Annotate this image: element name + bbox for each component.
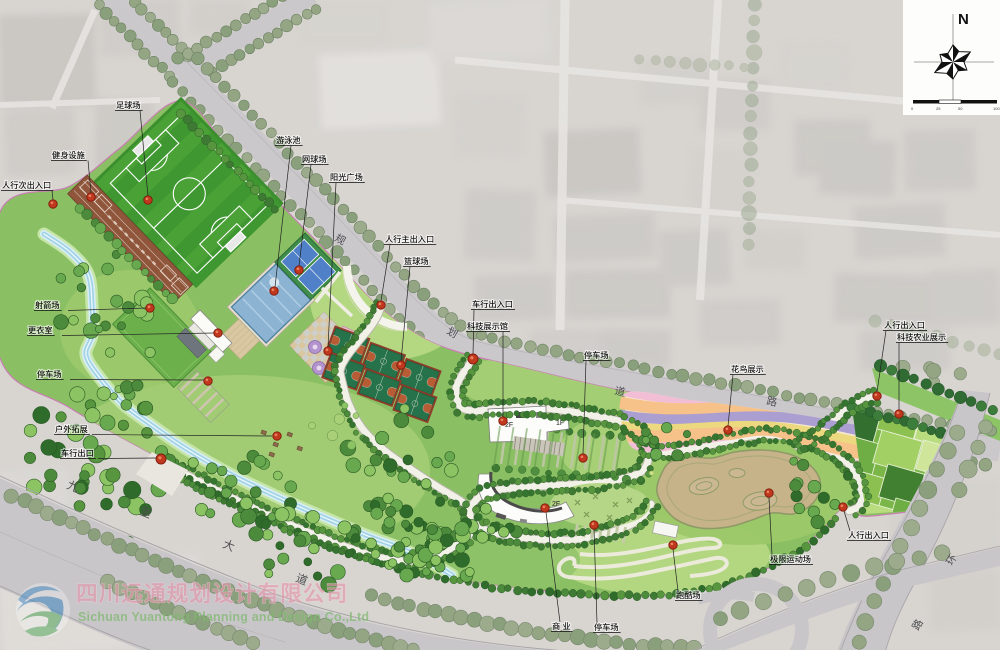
svg-text:商 业: 商 业 — [552, 621, 571, 631]
svg-text:网球场: 网球场 — [302, 154, 327, 164]
svg-text:车行出入口: 车行出入口 — [472, 299, 513, 309]
svg-text:健身设施: 健身设施 — [52, 150, 85, 160]
svg-text:四川远通规划设计有限公司: 四川远通规划设计有限公司 — [76, 581, 348, 606]
svg-text:极限运动场: 极限运动场 — [770, 554, 811, 564]
svg-text:人行主出入口: 人行主出入口 — [385, 234, 434, 244]
svg-text:更衣室: 更衣室 — [28, 325, 53, 335]
svg-text:50: 50 — [958, 106, 963, 111]
svg-text:科技农业展示: 科技农业展示 — [897, 332, 946, 342]
svg-text:游泳池: 游泳池 — [276, 135, 301, 145]
svg-text:人行次出入口: 人行次出入口 — [2, 180, 51, 190]
svg-text:人行出入口: 人行出入口 — [884, 320, 925, 330]
svg-text:足球场: 足球场 — [116, 100, 141, 110]
svg-text:N: N — [958, 11, 969, 28]
svg-text:Sichuan Yuantong Planning and: Sichuan Yuantong Planning and Design Co.… — [78, 610, 369, 624]
svg-text:停车场: 停车场 — [37, 369, 62, 379]
svg-text:篮球场: 篮球场 — [404, 256, 429, 266]
svg-text:25: 25 — [936, 106, 941, 111]
svg-text:2F: 2F — [552, 501, 560, 508]
svg-text:花鸟展示: 花鸟展示 — [731, 364, 764, 374]
svg-text:户外拓展: 户外拓展 — [55, 424, 88, 434]
svg-text:射箭场: 射箭场 — [35, 300, 60, 310]
svg-text:跑酷场: 跑酷场 — [676, 590, 701, 600]
svg-text:停车场: 停车场 — [584, 350, 609, 360]
svg-text:人行出入口: 人行出入口 — [848, 530, 889, 540]
svg-text:100: 100 — [993, 106, 1000, 111]
svg-text:科技展示馆: 科技展示馆 — [467, 321, 508, 331]
svg-text:停车场: 停车场 — [594, 622, 619, 632]
svg-text:阳光广场: 阳光广场 — [330, 172, 363, 182]
svg-text:车行出口: 车行出口 — [61, 448, 94, 458]
